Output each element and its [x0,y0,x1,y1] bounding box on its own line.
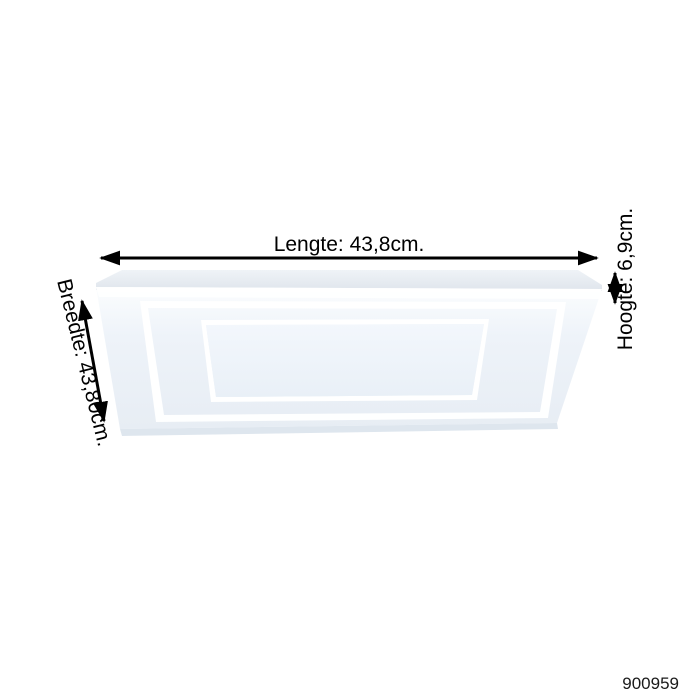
product-dimension-image: Lengte: 43,8cm. Hoogte: 6,9cm. Breedte: … [0,0,700,700]
lamp-top-highlight [96,287,602,299]
height-dimension-label: Hoogte: 6,9cm. [614,208,637,350]
length-dimension: Lengte: 43,8cm. [101,233,597,258]
lamp-center-diffuser [206,324,484,397]
lamp-dimension-diagram: Lengte: 43,8cm. Hoogte: 6,9cm. Breedte: … [0,0,700,700]
ceiling-lamp-illustration [96,270,602,436]
article-number: 900959 [622,674,679,693]
height-dimension: Hoogte: 6,9cm. [614,208,637,350]
length-dimension-label: Lengte: 43,8cm. [274,233,425,256]
